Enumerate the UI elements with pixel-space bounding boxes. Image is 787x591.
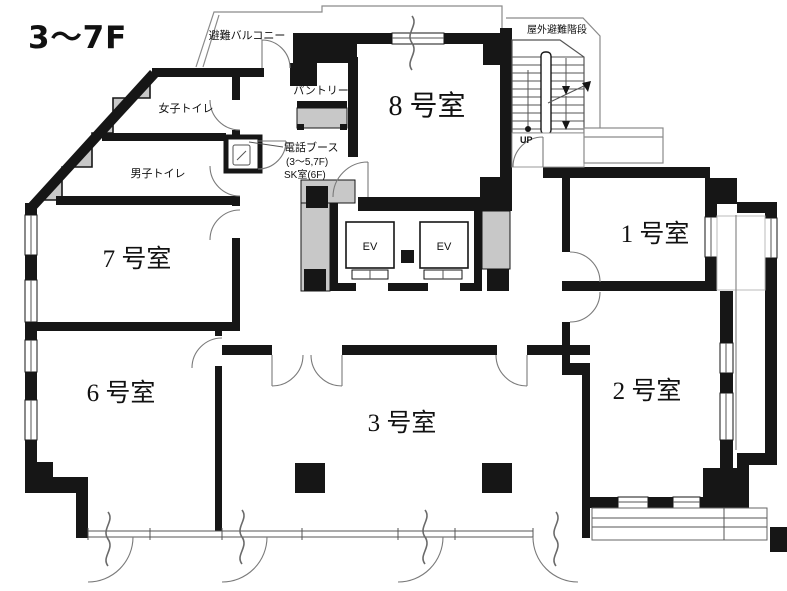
side-balcony	[717, 216, 765, 290]
pillars	[295, 463, 512, 493]
up-label: UP	[520, 135, 533, 145]
elevator-label: EV	[363, 241, 378, 253]
balcony-sash-door	[398, 537, 443, 582]
balcony-sash-door	[533, 537, 578, 582]
evac-balcony-label: 避難バルコニー	[209, 28, 286, 42]
room-label-3: 3 号室	[368, 409, 437, 437]
balcony-door	[262, 40, 290, 68]
room-1-door	[570, 252, 600, 282]
pantry-shelf-shade	[297, 108, 347, 128]
rear-balcony	[592, 508, 767, 540]
phone-booth-label: 電話ブース	[284, 140, 338, 154]
phone-booth	[226, 137, 283, 171]
pillar	[295, 463, 325, 493]
womens-toilet-door	[210, 100, 240, 130]
phone-booth-sk-label: SK室(6F)	[284, 168, 326, 181]
floorplan-page: 3〜7F	[0, 0, 787, 591]
elevator-label: EV	[437, 241, 452, 253]
outdoor-evac-stairs-label: 屋外避難階段	[527, 23, 587, 36]
womens-toilet-label: 女子トイレ	[159, 101, 214, 115]
pillar	[482, 463, 512, 493]
bottom-window-band	[88, 528, 533, 540]
room-3-double-door	[272, 355, 342, 386]
room-label-2: 2 号室	[613, 377, 682, 405]
ev-core-shade-right	[482, 211, 510, 269]
room-2-door	[570, 292, 600, 322]
room-3-door	[496, 355, 527, 386]
outdoor-stairs	[512, 40, 663, 167]
floorplan-drawing: EV EV	[0, 0, 787, 591]
room-label-8: 8 号室	[388, 90, 465, 122]
room-7-door	[210, 210, 240, 240]
stair-balcony	[584, 128, 663, 163]
mens-toilet-label: 男子トイレ	[131, 167, 186, 180]
stair-start-dot	[525, 126, 531, 132]
pantry-label: パントリー	[293, 84, 349, 97]
stair-rail	[541, 52, 551, 134]
phone-booth-floors-label: (3〜5,7F)	[286, 157, 328, 168]
room-label-6: 6 号室	[87, 379, 156, 407]
room-6-door	[192, 338, 222, 368]
room-label-7: 7 号室	[103, 245, 172, 273]
room-label-1: 1 号室	[621, 220, 690, 248]
